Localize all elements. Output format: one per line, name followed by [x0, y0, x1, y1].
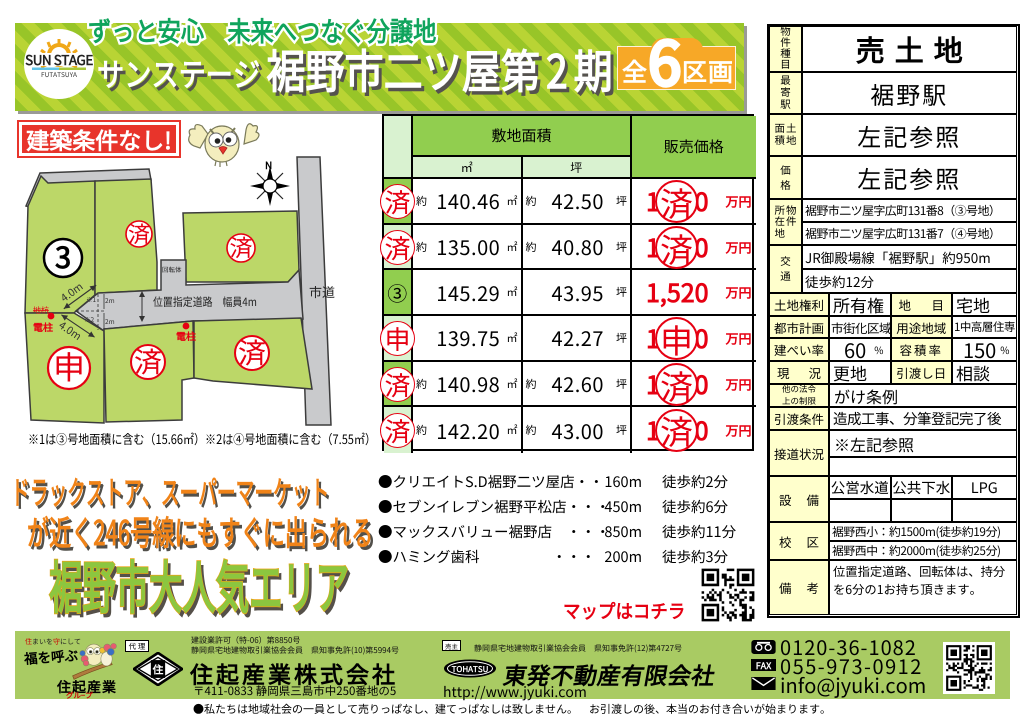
svg-text:2m: 2m [105, 295, 115, 305]
svg-text:電柱: 電柱 [33, 319, 53, 334]
svg-text:※1: ※1 [86, 294, 97, 304]
svg-text:2m: 2m [105, 316, 115, 326]
svg-text:済: 済 [128, 217, 150, 249]
svg-text:済: 済 [134, 341, 162, 381]
svg-text:3: 3 [55, 235, 71, 277]
svg-text:回転体: 回転体 [162, 264, 182, 274]
svg-text:市道: 市道 [309, 282, 335, 301]
svg-text:TOHATSU: TOHATSU [452, 664, 489, 675]
svg-text:済: 済 [230, 229, 253, 263]
svg-text:申: 申 [53, 343, 85, 389]
svg-text:位置指定道路 幅員4m: 位置指定道路 幅員4m [153, 294, 257, 310]
svg-text:電柱: 電柱 [176, 328, 196, 343]
svg-text:住: 住 [152, 662, 164, 677]
svg-text:※1は③号地面積に含む（15.66㎡）※2は④号地面積に含む: ※1は③号地面積に含む（15.66㎡）※2は④号地面積に含む（7.55㎡） [28, 429, 376, 448]
svg-text:N: N [265, 157, 272, 172]
svg-text:地杭: 地杭 [33, 305, 49, 316]
svg-text:済: 済 [238, 332, 266, 372]
svg-text:※2: ※2 [84, 314, 95, 324]
